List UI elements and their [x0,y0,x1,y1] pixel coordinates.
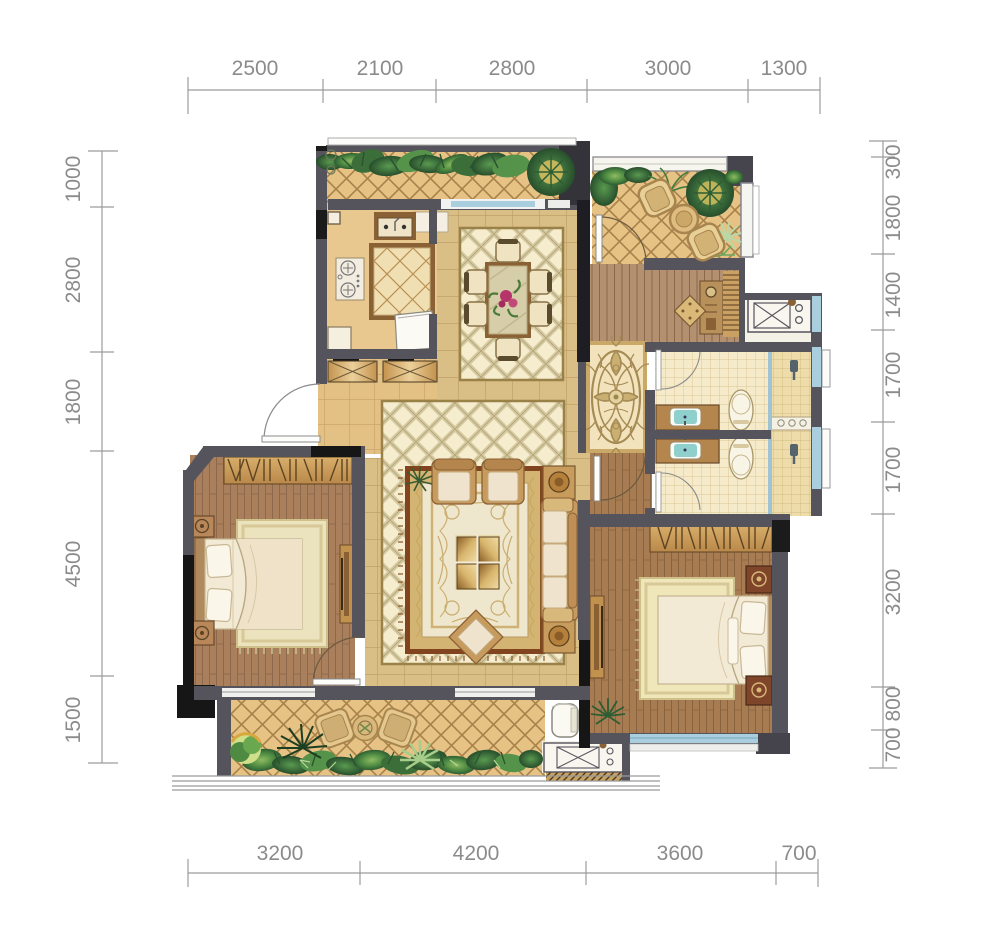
svg-text:1800: 1800 [882,195,905,242]
svg-text:1500: 1500 [62,697,85,744]
svg-text:700: 700 [781,842,816,865]
svg-text:800: 800 [882,686,905,721]
svg-text:2500: 2500 [232,57,279,80]
svg-text:3000: 3000 [645,57,692,80]
svg-text:2800: 2800 [489,57,536,80]
svg-text:1700: 1700 [882,447,905,494]
svg-text:2800: 2800 [62,257,85,304]
svg-text:700: 700 [882,727,905,762]
svg-text:3200: 3200 [882,569,905,616]
svg-text:1700: 1700 [882,352,905,399]
svg-text:3200: 3200 [257,842,304,865]
svg-text:300: 300 [882,144,905,179]
svg-text:1000: 1000 [62,156,85,203]
svg-text:1300: 1300 [761,57,808,80]
svg-text:4200: 4200 [453,842,500,865]
svg-text:4500: 4500 [62,541,85,588]
svg-text:1800: 1800 [62,379,85,426]
svg-text:2100: 2100 [357,57,404,80]
svg-text:3600: 3600 [657,842,704,865]
svg-text:1400: 1400 [882,272,905,319]
